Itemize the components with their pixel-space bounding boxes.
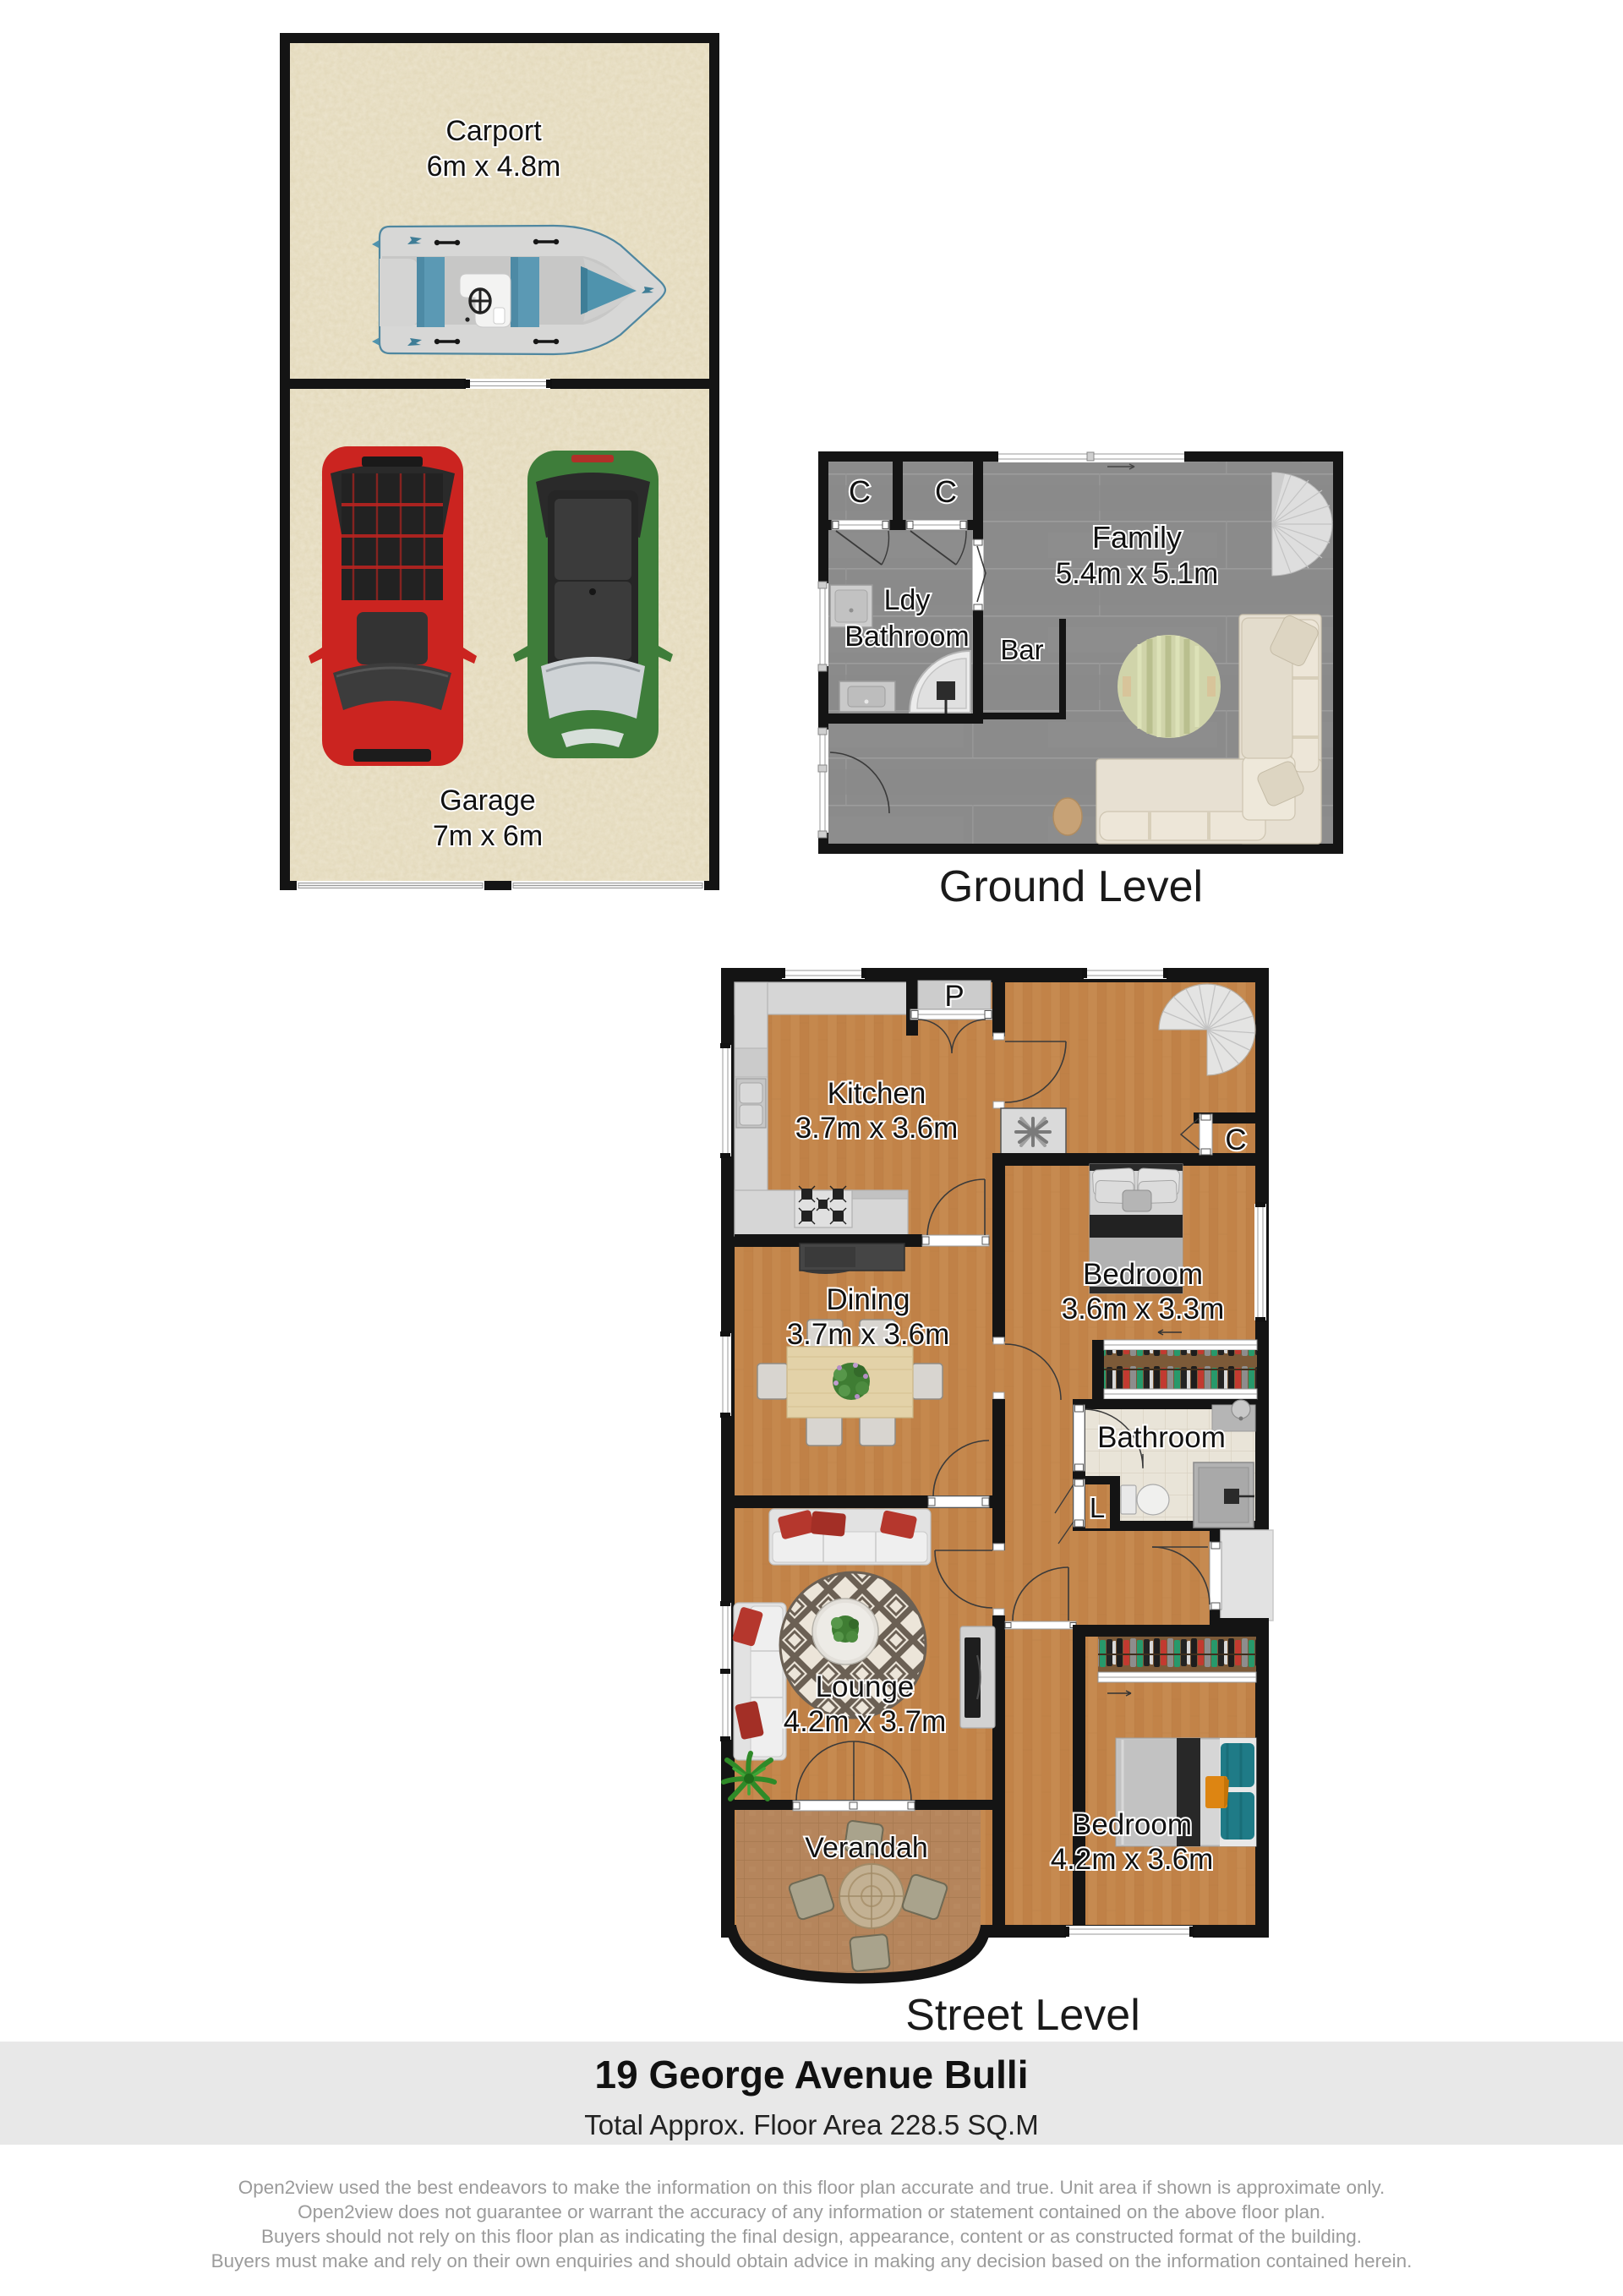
- svg-text:Verandah: Verandah: [805, 1832, 928, 1864]
- svg-text:Lounge: Lounge: [816, 1670, 915, 1703]
- svg-text:Carport: Carport: [445, 115, 542, 147]
- svg-text:Bathroom: Bathroom: [844, 620, 969, 653]
- svg-text:Bar: Bar: [1000, 634, 1043, 665]
- svg-text:Garage: Garage: [440, 784, 535, 817]
- svg-text:Open2view used the best endeav: Open2view used the best endeavors to mak…: [238, 2177, 1385, 2198]
- svg-text:3.7m x 3.6m: 3.7m x 3.6m: [795, 1112, 959, 1145]
- svg-text:Street Level: Street Level: [905, 1991, 1140, 2040]
- svg-text:Bathroom: Bathroom: [1097, 1421, 1226, 1454]
- svg-text:6m x 4.8m: 6m x 4.8m: [427, 150, 561, 183]
- svg-text:4.2m x 3.6m: 4.2m x 3.6m: [1051, 1843, 1214, 1876]
- svg-text:Family: Family: [1092, 520, 1182, 555]
- svg-text:L: L: [1090, 1492, 1105, 1523]
- svg-text:7m x 6m: 7m x 6m: [433, 820, 543, 852]
- svg-text:4.2m x 3.7m: 4.2m x 3.7m: [784, 1705, 947, 1738]
- svg-text:Ground Level: Ground Level: [939, 862, 1203, 911]
- svg-text:Dining: Dining: [826, 1283, 910, 1316]
- svg-text:C: C: [1225, 1123, 1246, 1156]
- svg-text:C: C: [849, 474, 871, 509]
- svg-text:Total Approx. Floor Area 228.5: Total Approx. Floor Area 228.5 SQ.M: [584, 2109, 1038, 2140]
- svg-text:Kitchen: Kitchen: [828, 1077, 926, 1110]
- svg-text:Buyers must make and rely on t: Buyers must make and rely on their own e…: [211, 2250, 1413, 2271]
- svg-text:Ldy: Ldy: [884, 584, 931, 616]
- svg-text:3.7m x 3.6m: 3.7m x 3.6m: [787, 1318, 950, 1351]
- svg-text:5.4m x 5.1m: 5.4m x 5.1m: [1056, 557, 1219, 590]
- svg-text:19 George Avenue Bulli: 19 George Avenue Bulli: [595, 2053, 1029, 2096]
- svg-text:C: C: [935, 474, 957, 509]
- svg-text:Open2view does not guarantee o: Open2view does not guarantee or warrant …: [298, 2201, 1325, 2222]
- svg-text:P: P: [944, 980, 964, 1013]
- svg-text:3.6m x 3.3m: 3.6m x 3.3m: [1062, 1293, 1225, 1326]
- svg-text:Bedroom: Bedroom: [1072, 1808, 1192, 1841]
- svg-text:Bedroom: Bedroom: [1083, 1258, 1203, 1291]
- svg-text:Buyers should not rely on this: Buyers should not rely on this floor pla…: [261, 2226, 1362, 2247]
